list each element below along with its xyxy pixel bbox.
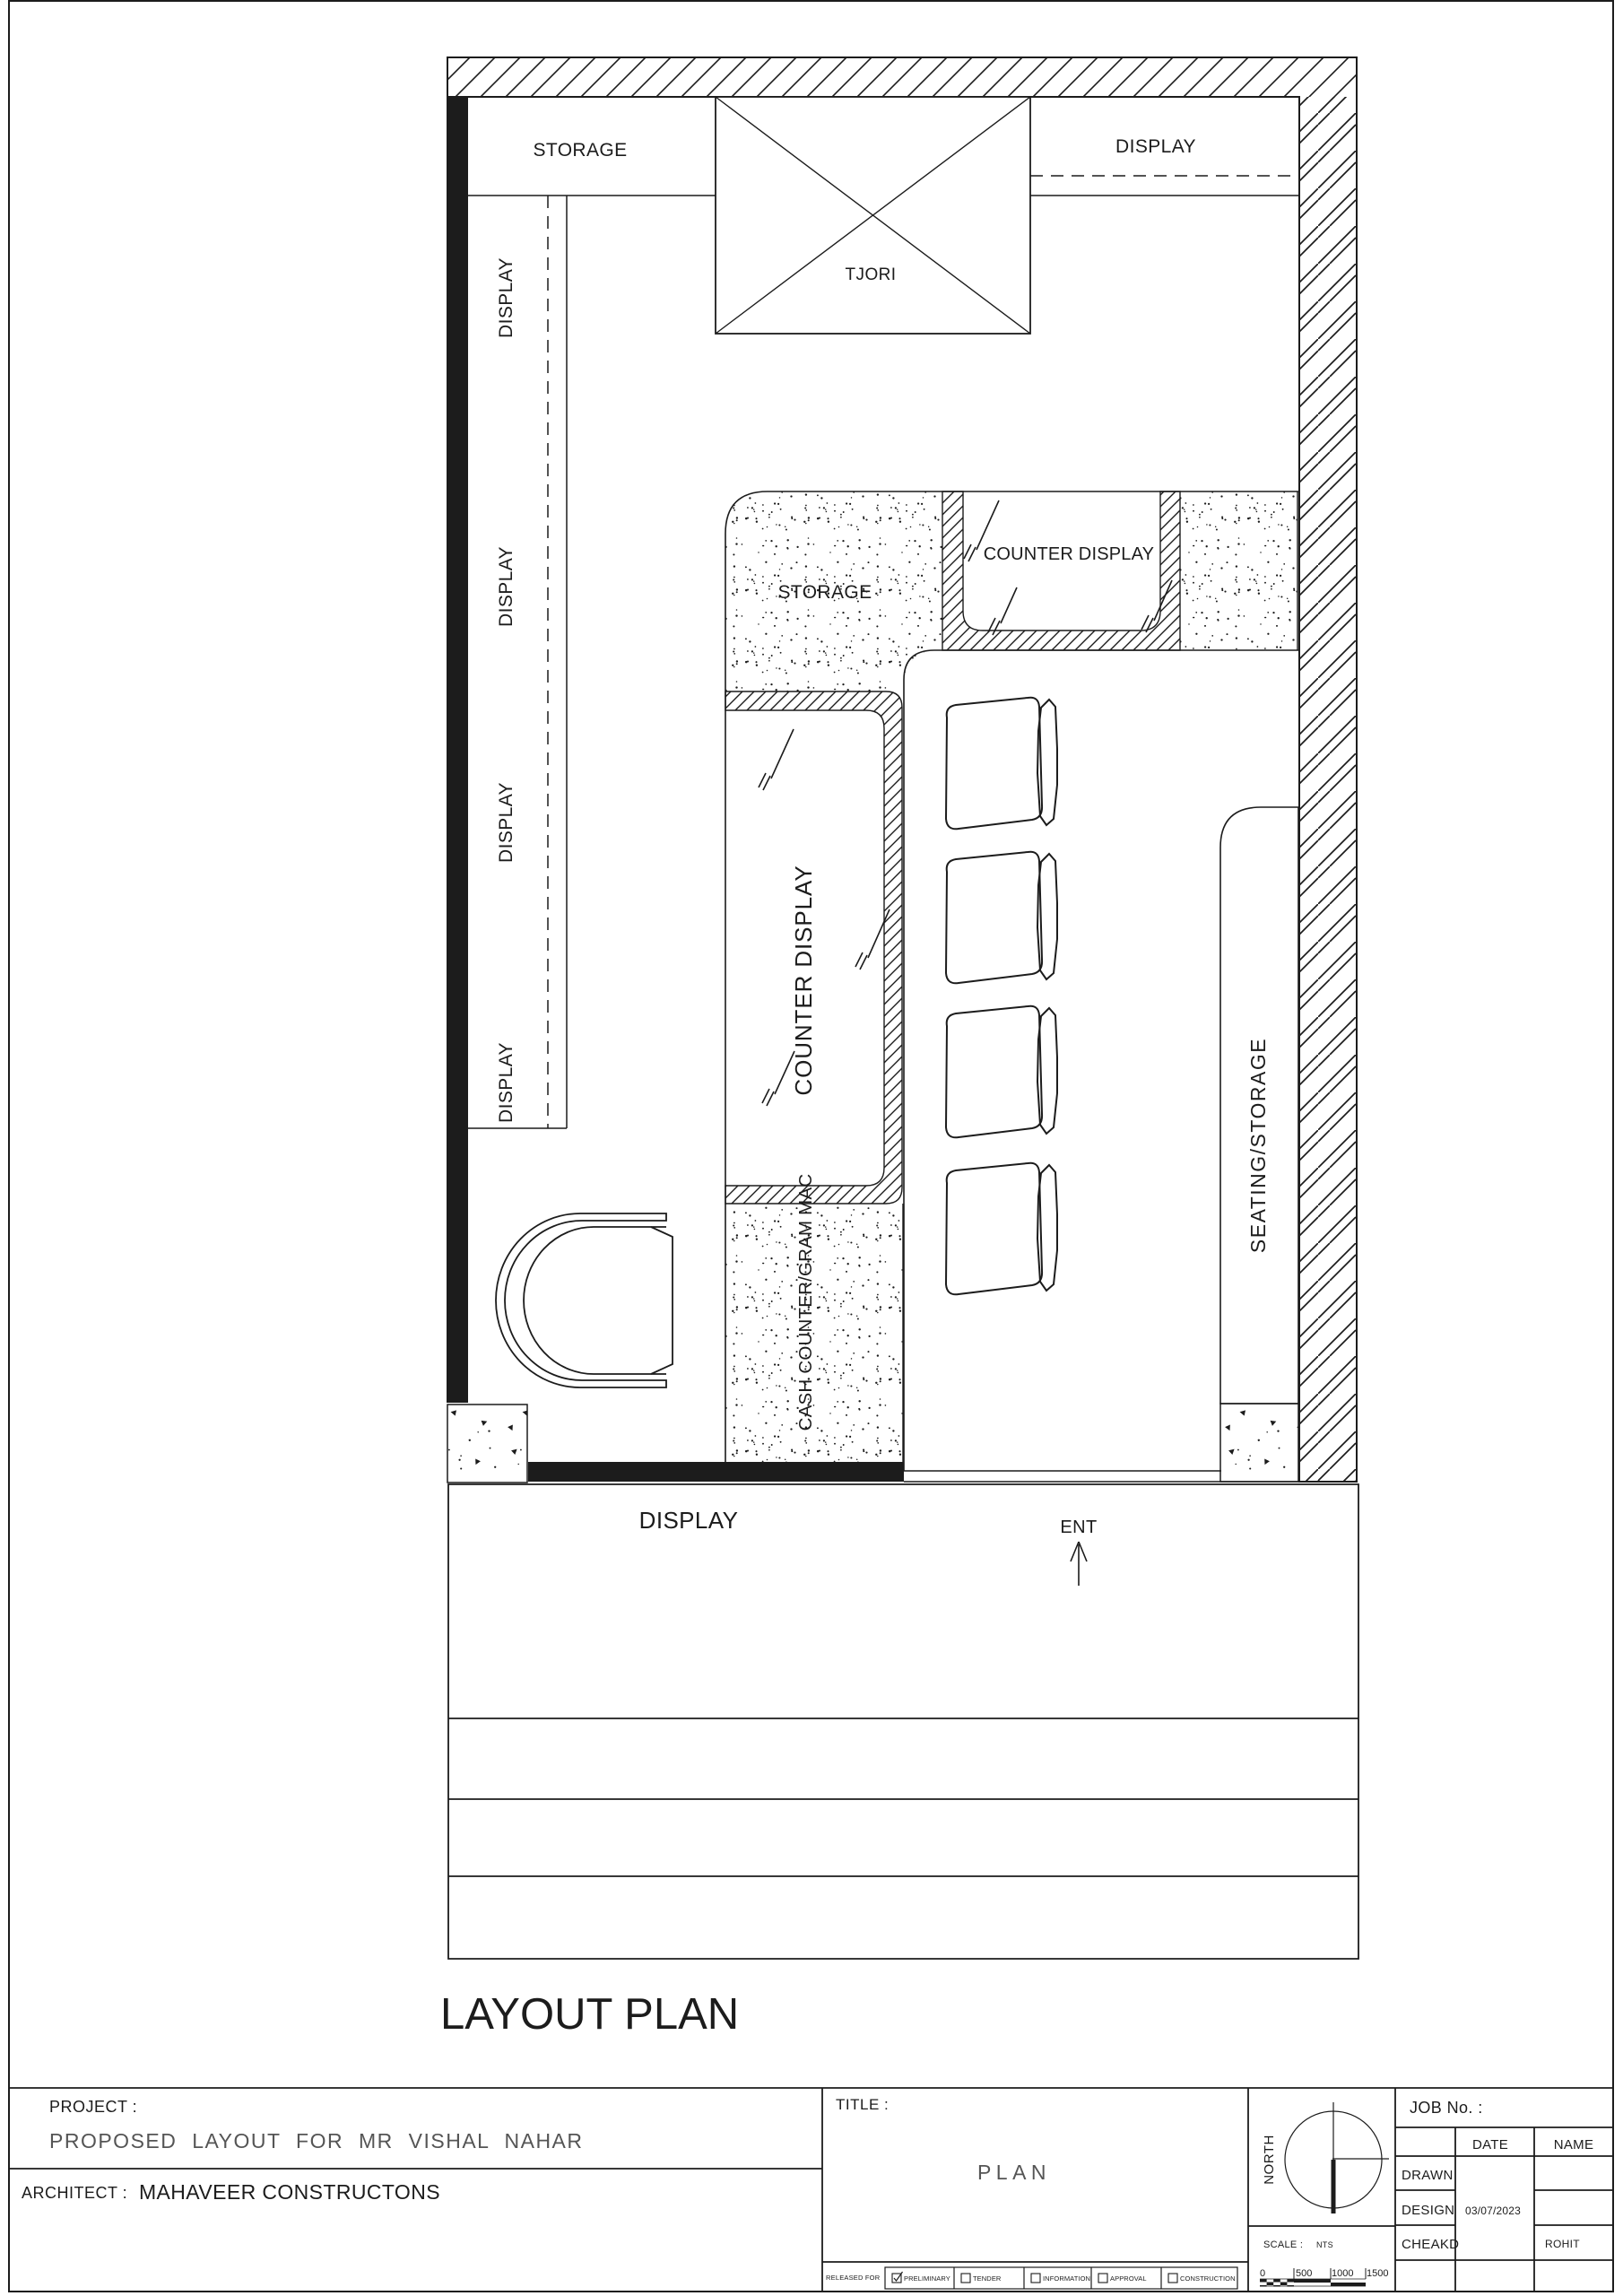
svg-text:DATE: DATE xyxy=(1472,2137,1508,2152)
svg-text:NTS: NTS xyxy=(1316,2240,1333,2249)
svg-text:COUNTER DISPLAY: COUNTER DISPLAY xyxy=(790,865,817,1095)
svg-text:NORTH: NORTH xyxy=(1262,2135,1277,2185)
svg-text:SEATING/STORAGE: SEATING/STORAGE xyxy=(1246,1038,1270,1253)
svg-text:PLAN: PLAN xyxy=(977,2161,1051,2184)
svg-text:APPROVAL: APPROVAL xyxy=(1110,2274,1147,2283)
svg-text:MAHAVEER CONSTRUCTONS: MAHAVEER CONSTRUCTONS xyxy=(139,2180,440,2204)
svg-text:STORAGE: STORAGE xyxy=(777,582,872,603)
svg-text:DISPLAY: DISPLAY xyxy=(496,1042,516,1123)
svg-text:NAME: NAME xyxy=(1554,2137,1594,2152)
svg-text:03/07/2023: 03/07/2023 xyxy=(1465,2205,1521,2217)
svg-text:1000: 1000 xyxy=(1332,2268,1353,2279)
svg-text:ARCHITECT :: ARCHITECT : xyxy=(22,2184,127,2202)
svg-text:PROJECT :: PROJECT : xyxy=(49,2098,137,2116)
svg-text:TITLE :: TITLE : xyxy=(836,2096,889,2113)
svg-text:SCALE :: SCALE : xyxy=(1263,2239,1303,2250)
svg-text:CASH COUNTER/GRAM MAC: CASH COUNTER/GRAM MAC xyxy=(795,1174,816,1431)
svg-text:0: 0 xyxy=(1260,2268,1266,2279)
svg-text:COUNTER DISPLAY: COUNTER DISPLAY xyxy=(984,544,1154,564)
svg-text:DESIGN: DESIGN xyxy=(1402,2203,1454,2218)
svg-text:LAYOUT PLAN: LAYOUT PLAN xyxy=(440,1990,739,2039)
svg-text:DISPLAY: DISPLAY xyxy=(496,257,516,338)
svg-text:ROHIT: ROHIT xyxy=(1545,2238,1580,2250)
svg-text:CONSTRUCTION: CONSTRUCTION xyxy=(1180,2274,1236,2283)
svg-text:STORAGE: STORAGE xyxy=(533,140,627,161)
svg-text:JOB No. :: JOB No. : xyxy=(1410,2099,1483,2117)
svg-text:TJORI: TJORI xyxy=(846,265,897,284)
svg-text:PRELIMINARY: PRELIMINARY xyxy=(904,2274,950,2283)
svg-text:DISPLAY: DISPLAY xyxy=(639,1507,739,1534)
svg-text:DRAWN: DRAWN xyxy=(1402,2168,1454,2183)
svg-text:CHEAKD: CHEAKD xyxy=(1402,2237,1459,2252)
svg-text:ENT: ENT xyxy=(1060,1518,1097,1537)
svg-text:RELEASED FOR: RELEASED FOR xyxy=(826,2274,881,2282)
svg-text:INFORMATION: INFORMATION xyxy=(1043,2274,1090,2283)
svg-text:DISPLAY: DISPLAY xyxy=(1115,136,1196,157)
svg-text:DISPLAY: DISPLAY xyxy=(496,546,516,627)
svg-text:1500: 1500 xyxy=(1367,2268,1388,2279)
svg-text:TENDER: TENDER xyxy=(973,2274,1002,2283)
svg-text:DISPLAY: DISPLAY xyxy=(496,782,516,863)
svg-text:PROPOSED LAYOUT FOR MR VISHAL: PROPOSED LAYOUT FOR MR VISHAL NAHAR xyxy=(49,2129,584,2152)
svg-text:500: 500 xyxy=(1296,2268,1312,2279)
